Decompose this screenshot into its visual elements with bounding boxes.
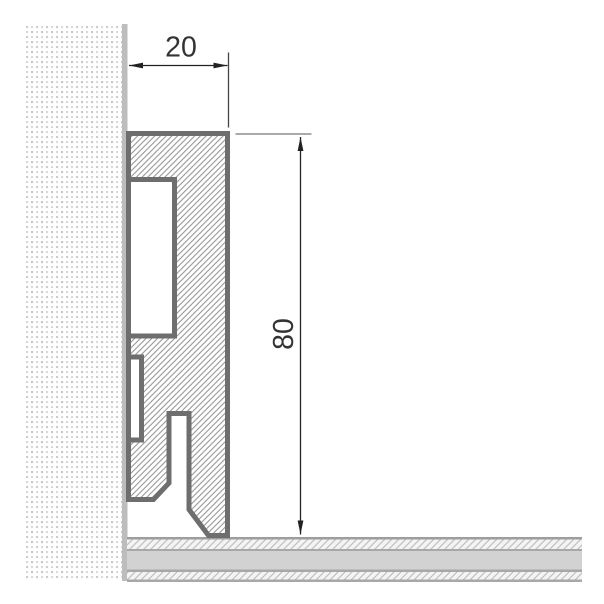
section-drawing: 20 80 — [0, 0, 604, 604]
floor-top-line — [127, 537, 582, 540]
floor-core-band — [127, 551, 582, 570]
skirting-profile-section — [129, 134, 228, 536]
dim-height-arrow-top-icon — [298, 137, 304, 151]
floor-underlay-band — [127, 540, 582, 550]
wall — [25, 24, 128, 581]
dim-height-label: 80 — [268, 318, 300, 350]
dim-height-arrow-bottom-icon — [298, 521, 304, 535]
floor-divider-line-2 — [127, 570, 582, 573]
dimension-width: 20 — [129, 32, 229, 128]
floor — [127, 537, 582, 582]
technical-drawing-canvas: 20 80 — [0, 0, 604, 604]
floor-divider-line-1 — [127, 549, 582, 551]
dim-width-arrow-left-icon — [129, 63, 143, 69]
floor-bottom-band — [127, 572, 582, 580]
dim-width-label: 20 — [165, 32, 197, 64]
dimension-height: 80 — [236, 134, 312, 535]
dim-width-arrow-right-icon — [214, 63, 228, 69]
floor-bottom-line — [127, 580, 582, 583]
wall-masonry-dotted-section — [25, 24, 122, 581]
